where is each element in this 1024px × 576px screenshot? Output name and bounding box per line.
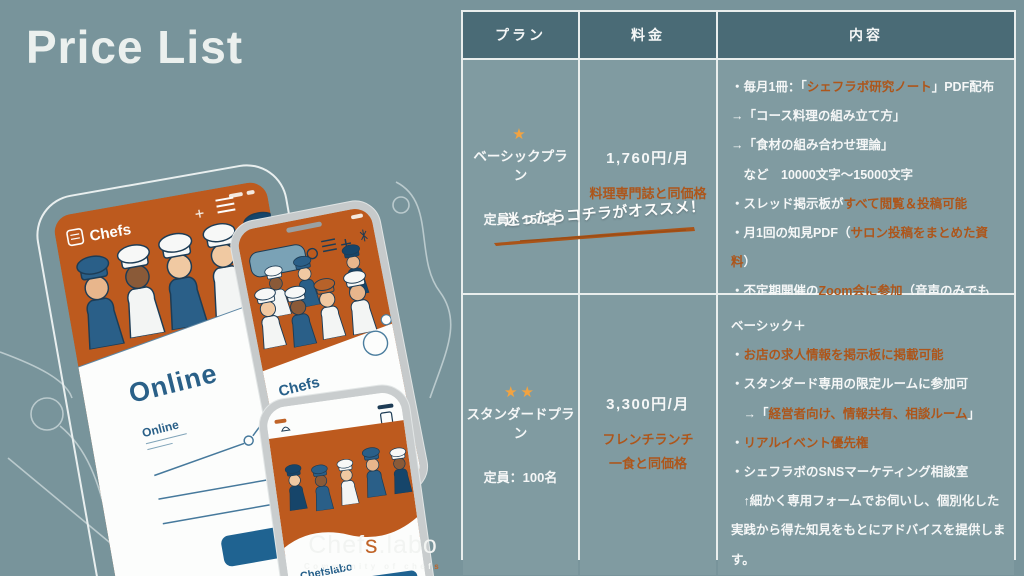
plan-name: ベーシックプラ ン <box>473 147 567 185</box>
feature-line: →「食材の組み合わせ理論」 <box>731 131 1006 160</box>
basic-plan-cell: ★ ベーシックプラ ン 定員：150名 <box>463 60 578 293</box>
brand-logo-text: Chefs.labo <box>288 531 458 560</box>
price-note: 料理専門誌と同価格 <box>589 182 706 206</box>
feature-line: ・スレッド掲示板がすべて閲覧＆投稿可能 <box>731 190 1006 219</box>
feature-line: ベーシック＋ <box>731 312 1006 341</box>
feature-line: ・お店の求人情報を掲示板に掲載可能 <box>731 341 1006 370</box>
feature-line: →「経営者向け、情報共有、相談ルーム」 <box>731 400 1006 429</box>
phone-mockups-illustration: Chefs Online Online <box>0 0 460 576</box>
brand-tagline: Community of chefs <box>288 562 458 571</box>
basic-features-cell: ・毎月1冊：「シェフラボ研究ノート」PDF配布→「コース料理の組み立て方」→「食… <box>718 60 1014 293</box>
column-header-price: 料金 <box>580 12 716 58</box>
feature-line: ↑細かく専用フォームでお伺いし、個別化した <box>731 487 1006 516</box>
price-table: プラン 料金 内容 ★ ベーシックプラ ン 定員：150名 1,760円/月 料… <box>461 10 1016 560</box>
feature-line: ・スタンダード専用の限定ルームに参加可 <box>731 370 1006 399</box>
basic-price-cell: 1,760円/月 料理専門誌と同価格 <box>580 60 716 293</box>
plan-price: 1,760円/月 <box>606 147 690 168</box>
column-header-content: 内容 <box>718 12 1014 58</box>
standard-plan-cell: ★★ スタンダードプラ ン 定員：100名 <box>463 295 578 575</box>
feature-line: 実践から得た知見をもとにアドバイスを提供します。 <box>731 516 1006 574</box>
feature-line: ・毎月1冊：「シェフラボ研究ノート」PDF配布 <box>731 73 1006 102</box>
plan-price: 3,300円/月 <box>606 393 690 414</box>
price-note: フレンチランチ 一食と同価格 <box>602 428 693 476</box>
plan-name: スタンダードプラ ン <box>467 405 575 443</box>
feature-line: ・月1回の知見PDF（サロン投稿をまとめた資料） <box>731 219 1006 277</box>
star-icon: ★ <box>512 125 528 143</box>
brand-logo: Chefs.labo Community of chefs <box>288 531 458 571</box>
star-icons: ★★ <box>504 383 537 401</box>
feature-line: →「コース料理の組み立て方」 <box>731 102 1006 131</box>
feature-line: ・シェフラボのSNSマーケティング相談室 <box>731 458 1006 487</box>
plan-capacity: 定員：100名 <box>484 467 558 486</box>
plan-capacity: 定員：150名 <box>484 209 558 228</box>
feature-line: など 10000文字～15000文字 <box>731 161 1006 190</box>
standard-features-cell: ベーシック＋・お店の求人情報を掲示板に掲載可能・スタンダード専用の限定ルームに参… <box>718 295 1014 575</box>
column-header-plan: プラン <box>463 12 578 58</box>
standard-price-cell: 3,300円/月 フレンチランチ 一食と同価格 <box>580 295 716 575</box>
feature-line: ・リアルイベント優先権 <box>731 429 1006 458</box>
